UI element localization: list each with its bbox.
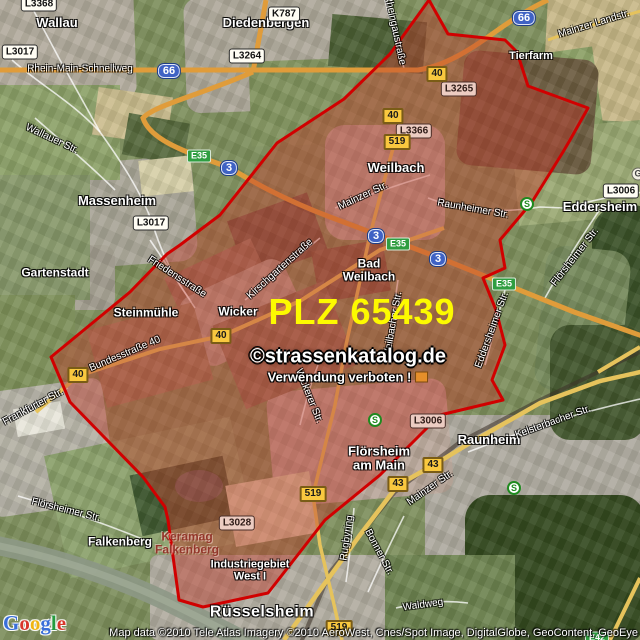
town-label-steinm-hle: Steinmühle	[114, 307, 179, 320]
s-bahn-station-icon: S	[368, 413, 382, 427]
town-label-weilbach: Weilbach	[368, 161, 425, 175]
road-badge-l3368: L3368	[21, 0, 57, 12]
street-label-mainzer-str: Mainzer Str.	[405, 468, 455, 508]
plz-code-label: PLZ 65439	[268, 291, 455, 333]
watermark-marker	[415, 372, 428, 383]
road-badge-l3017: L3017	[133, 216, 169, 231]
road-badge-66: 66	[512, 10, 536, 26]
watermark: ©strassenkatalog.de Verwendung verboten …	[250, 346, 446, 385]
street-label-wallauer-str: Wallauer Str.	[24, 122, 80, 156]
road-badge-43: 43	[422, 457, 443, 473]
town-label-bad-weilbach: BadWeilbach	[343, 257, 395, 282]
map-attribution: Map data ©2010 Tele Atlas Imagery ©2010 …	[109, 627, 638, 639]
road-badge-40: 40	[210, 328, 231, 344]
map-canvas[interactable]: WallauDiedenbergenTierfarmMassenheimWeil…	[0, 0, 640, 640]
road-badge-e35: E35	[492, 278, 516, 291]
street-label-bundesstra-e-40: Bundesstraße 40	[88, 334, 162, 374]
town-label-massenheim: Massenheim	[78, 194, 156, 208]
google-logo[interactable]: Google	[3, 611, 66, 636]
town-label-tierfarm: Tierfarm	[509, 51, 553, 63]
road-badge-40: 40	[67, 367, 88, 383]
street-label-rheingaustra-e: Rheingaustraße	[382, 0, 408, 66]
street-label-frankfurter-str: Frankfurter Str.	[1, 386, 65, 427]
road-badge-l3006: L3006	[603, 184, 639, 199]
town-label-raunheim: Raunheim	[458, 433, 521, 447]
road-badge-519: 519	[300, 486, 327, 502]
road-badge-40: 40	[382, 108, 403, 124]
road-badge-l3006: L3006	[410, 414, 446, 429]
google-logo-letter: e	[57, 611, 66, 635]
town-label-wicker: Wicker	[218, 306, 257, 319]
street-label-bonner-str: Bonner Str.	[362, 527, 395, 576]
street-label-raunheimer-str: Raunheimer Str.	[436, 197, 509, 220]
town-label-r-sselsheim: Rüsselsheim	[210, 605, 314, 622]
street-label-mainzer-landstr: Mainzer Landstr.	[557, 8, 631, 40]
road-badge-66: 66	[157, 63, 181, 79]
watermark-line1: ©strassenkatalog.de	[250, 346, 446, 369]
google-logo-letter: o	[19, 611, 30, 635]
s-bahn-station-icon: S	[520, 197, 534, 211]
road-badge-l3017: L3017	[2, 45, 38, 60]
town-label-gartenstadt: Gartenstadt	[21, 267, 88, 280]
road-badge-43: 43	[387, 476, 408, 492]
road-badge-3: 3	[367, 228, 385, 244]
town-label-eddersheim: Eddersheim	[563, 200, 637, 214]
town-label-wallau: Wallau	[36, 16, 77, 30]
road-badge-k787: K787	[268, 7, 300, 22]
watermark-line2-text: Verwendung verboten !	[268, 370, 412, 385]
road-badge-e35: E35	[187, 150, 211, 163]
street-label-rugbyring: Rugbyring	[338, 515, 355, 562]
google-logo-letter: G	[3, 611, 19, 635]
town-label-industriegebiet-west-i: IndustriegebietWest I	[211, 559, 290, 582]
town-label-falkenberg: Falkenberg	[88, 536, 152, 549]
road-badge-3: 3	[220, 160, 238, 176]
street-label-fl-rsheimer-str: Flörsheimer Str.	[30, 496, 101, 524]
road-badge-3: 3	[429, 251, 447, 267]
street-label-waldweg: Waldweg	[402, 597, 444, 614]
s-bahn-station-icon: S	[507, 481, 521, 495]
road-badge-l3264: L3264	[229, 49, 265, 64]
road-badge-40: 40	[426, 66, 447, 82]
street-label-friedensstra-e: Friedensstraße	[146, 254, 208, 300]
road-badge-e35: E35	[386, 238, 410, 251]
road-badge-l3028: L3028	[219, 516, 255, 531]
google-logo-letter: o	[30, 611, 41, 635]
street-label-kelsterbacher-str: Kelsterbacher Str.	[514, 403, 592, 441]
town-label-keramag-falkenberg: KeramagFalkenberg	[155, 530, 219, 555]
street-label-mainzer-str: Mainzer Str.	[336, 180, 389, 213]
google-logo-letter: g	[40, 611, 51, 635]
road-badge-l3265: L3265	[441, 82, 477, 97]
street-label-eddersheimer-str: Eddersheimer Str.	[473, 291, 511, 370]
watermark-line2: Verwendung verboten !	[250, 370, 446, 385]
town-label-fl-rsheim-am-main: Flörsheimam Main	[348, 444, 410, 471]
poi-icon-g: G	[632, 168, 640, 181]
road-badge-519: 519	[384, 134, 411, 150]
street-label-rhein-main-schnellweg: Rhein-Main-Schnellweg	[27, 64, 133, 75]
street-label-fl-rsheimer-str: Flörsheimer Str.	[549, 226, 601, 288]
